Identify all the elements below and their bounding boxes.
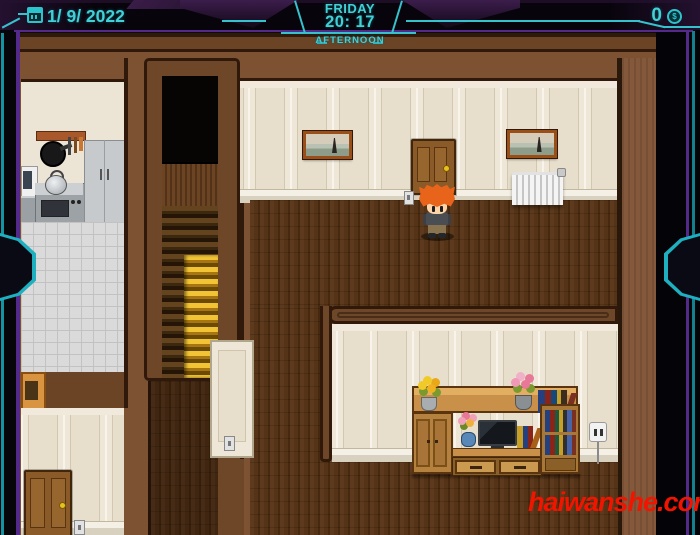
light-switch[interactable] bbox=[74, 520, 85, 535]
living-room-wall-left-trim bbox=[320, 306, 332, 462]
microwave-window bbox=[23, 171, 32, 189]
character-shoe bbox=[428, 233, 436, 238]
stove-dial bbox=[71, 200, 75, 204]
radiator bbox=[512, 172, 563, 205]
character-shirt bbox=[426, 212, 448, 226]
staircase-landing bbox=[162, 162, 218, 206]
pink-flowers bbox=[511, 378, 520, 387]
coin-icon: $ bbox=[667, 9, 682, 24]
television[interactable] bbox=[478, 420, 517, 446]
hud-frame-line bbox=[222, 20, 266, 22]
hud-frame-line bbox=[281, 32, 303, 34]
utensil bbox=[68, 137, 71, 155]
game-viewport[interactable] bbox=[16, 29, 656, 535]
character-eye bbox=[440, 206, 443, 212]
kettle bbox=[45, 175, 67, 195]
daypart-display: AFTERNOON bbox=[295, 35, 405, 46]
vase-flowers bbox=[458, 417, 466, 425]
refrigerator-handle bbox=[107, 169, 109, 180]
gold-amount: 0 bbox=[632, 5, 662, 27]
frying-pan-icon bbox=[40, 141, 66, 167]
character-shoe bbox=[438, 233, 446, 238]
staircase-opening bbox=[162, 76, 218, 162]
door-knob bbox=[59, 502, 66, 509]
refrigerator[interactable] bbox=[84, 140, 127, 224]
door-panel bbox=[30, 478, 45, 528]
wall-outlet bbox=[589, 422, 607, 442]
drawer bbox=[455, 460, 496, 474]
cabinet-door bbox=[433, 419, 447, 467]
utensil bbox=[74, 137, 77, 153]
watermark: haiwanshe.com bbox=[528, 487, 700, 518]
refrigerator-door-seam bbox=[104, 140, 105, 222]
hud-decoration bbox=[402, 0, 520, 28]
oven-window bbox=[41, 200, 69, 217]
character-eye bbox=[432, 206, 435, 212]
light-switch[interactable] bbox=[404, 191, 414, 205]
bookshelf[interactable] bbox=[540, 404, 580, 474]
calendar-icon bbox=[27, 7, 43, 23]
character-hair bbox=[419, 184, 455, 207]
cabinet-door bbox=[416, 419, 430, 467]
door-knob bbox=[443, 165, 450, 172]
cabinet-knob bbox=[427, 440, 430, 443]
clock-panel-edge bbox=[303, 32, 392, 34]
landscape-painting-right[interactable] bbox=[507, 130, 557, 158]
stove-dial bbox=[77, 200, 81, 204]
tv-shelf-board bbox=[452, 448, 542, 457]
utensil bbox=[79, 137, 83, 151]
date-display: 1/ 9/ 2022 bbox=[47, 6, 125, 27]
bookshelf-cupboard bbox=[545, 458, 576, 471]
living-room-wall-cap bbox=[328, 306, 618, 324]
wooden-cabinet[interactable] bbox=[412, 412, 453, 474]
flower-pot bbox=[421, 397, 437, 411]
door-panel bbox=[417, 147, 430, 182]
stairwell-down bbox=[148, 381, 218, 535]
left-room-door[interactable] bbox=[24, 470, 72, 535]
kitchen-counter bbox=[21, 196, 36, 224]
right-wall-column bbox=[622, 58, 656, 535]
flower-pot bbox=[515, 395, 532, 410]
hud-frame-line bbox=[663, 26, 700, 28]
hud-frame-line bbox=[391, 32, 416, 34]
power-cord bbox=[597, 442, 599, 464]
cabinet-knob bbox=[435, 440, 438, 443]
corridor-floor bbox=[250, 308, 330, 462]
cabinet-window bbox=[25, 381, 38, 400]
landscape-painting-left[interactable] bbox=[303, 131, 352, 159]
drawer bbox=[499, 460, 540, 474]
yellow-flowers bbox=[418, 381, 427, 390]
bookshelf-books bbox=[545, 435, 576, 455]
time-display: 20: 17 bbox=[295, 13, 405, 32]
kitchen-tile-floor bbox=[21, 222, 124, 372]
drawer-unit[interactable] bbox=[452, 457, 542, 476]
light-switch[interactable] bbox=[224, 436, 235, 451]
player-character[interactable] bbox=[418, 184, 456, 244]
wall-trim bbox=[124, 58, 128, 408]
blue-vase bbox=[461, 432, 476, 447]
refrigerator-handle bbox=[100, 169, 102, 180]
hud-frame-line bbox=[406, 20, 640, 22]
bookshelf-books bbox=[545, 410, 576, 432]
game-screenshot: 1/ 9/ 2022 FRIDAY 20: 17 AFTERNOON 0 $ h… bbox=[0, 0, 700, 535]
hud-decoration bbox=[180, 0, 298, 28]
